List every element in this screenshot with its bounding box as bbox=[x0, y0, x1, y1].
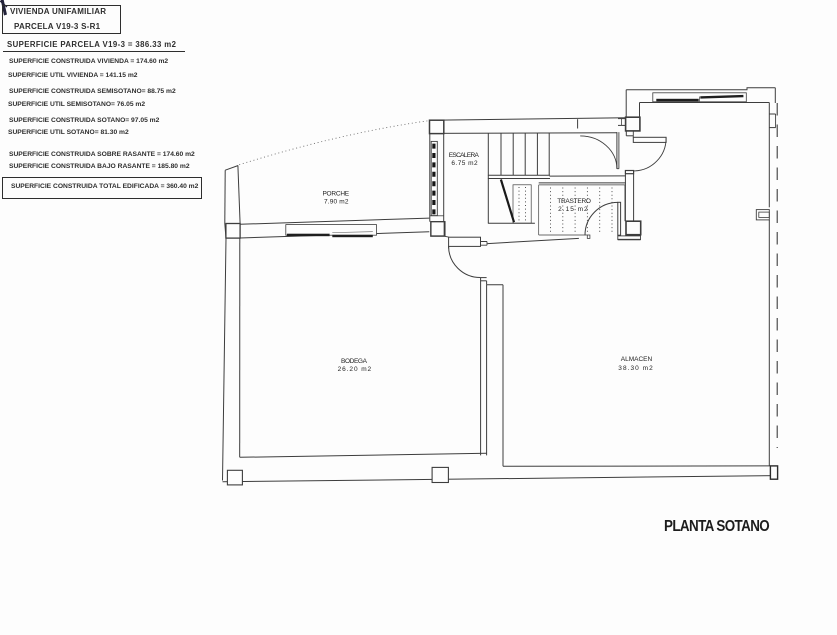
svg-text:ESCALERA: ESCALERA bbox=[449, 152, 480, 159]
svg-text:PORCHE: PORCHE bbox=[322, 190, 349, 197]
svg-text:TRASTERO: TRASTERO bbox=[557, 198, 591, 205]
svg-text:26.20 m2: 26.20 m2 bbox=[338, 366, 372, 373]
svg-text:7.90 m2: 7.90 m2 bbox=[324, 199, 349, 206]
svg-text:38.30 m2: 38.30 m2 bbox=[618, 365, 653, 372]
svg-text:6.75 m2: 6.75 m2 bbox=[451, 160, 478, 167]
svg-text:2.15 m2: 2.15 m2 bbox=[558, 206, 588, 213]
svg-text:ALMACEN: ALMACEN bbox=[621, 356, 653, 363]
svg-text:BODEGA: BODEGA bbox=[341, 358, 368, 365]
